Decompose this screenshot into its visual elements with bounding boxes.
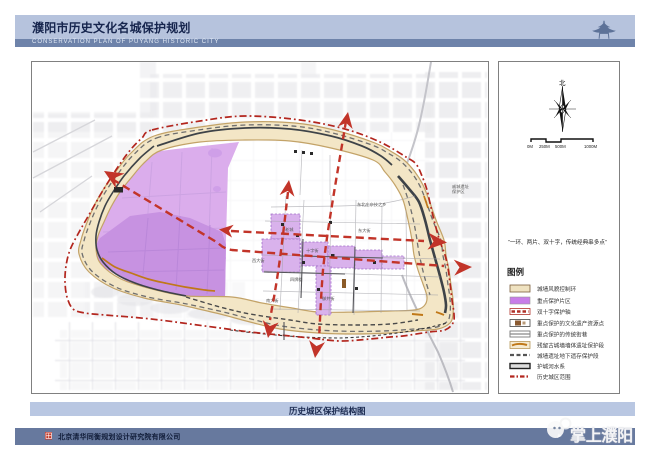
svg-text:残留古城墙墙体遗址保护段: 残留古城墙墙体遗址保护段 xyxy=(537,342,605,350)
svg-text:历史城区范围: 历史城区范围 xyxy=(537,373,571,381)
svg-text:重点保护片区: 重点保护片区 xyxy=(537,297,571,305)
svg-text:重点保护的文化遗产资源点: 重点保护的文化遗产资源点 xyxy=(537,320,605,328)
svg-text:御井街: 御井街 xyxy=(322,295,335,302)
svg-text:双十字保护轴: 双十字保护轴 xyxy=(537,308,571,316)
svg-text:西大街: 西大街 xyxy=(252,257,265,264)
svg-text:护城河水系: 护城河水系 xyxy=(537,363,565,371)
svg-text:东北庄杂技之乡: 东北庄杂技之乡 xyxy=(357,201,386,208)
svg-text:北: 北 xyxy=(559,79,566,87)
svg-text:老城: 老城 xyxy=(285,226,294,233)
svg-text:0M: 0M xyxy=(527,144,533,149)
svg-text:1000M: 1000M xyxy=(584,144,598,149)
svg-text:重点保护的传统街巷: 重点保护的传统街巷 xyxy=(537,331,588,339)
svg-text:250M: 250M xyxy=(539,144,550,149)
svg-text:保护区: 保护区 xyxy=(452,188,465,195)
svg-text:东大街: 东大街 xyxy=(358,227,371,234)
svg-text:500M: 500M xyxy=(555,144,566,149)
svg-text:城墙风貌控制环: 城墙风貌控制环 xyxy=(537,285,577,293)
svg-text:四牌楼: 四牌楼 xyxy=(290,276,303,283)
svg-text:城墙遗址地下遗存保护段: 城墙遗址地下遗存保护段 xyxy=(537,352,599,360)
svg-text:十字街: 十字街 xyxy=(306,247,319,254)
